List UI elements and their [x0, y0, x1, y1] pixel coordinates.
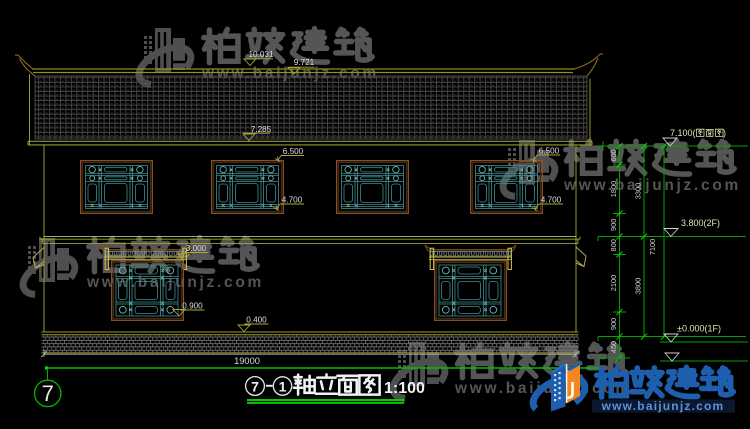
svg-text:3800: 3800 — [634, 278, 643, 294]
svg-text:3.000: 3.000 — [186, 244, 207, 253]
svg-text:7100: 7100 — [648, 239, 657, 255]
svg-text:6.500: 6.500 — [283, 147, 304, 156]
svg-text:7.285: 7.285 — [251, 125, 272, 134]
svg-text:3300: 3300 — [634, 183, 643, 199]
svg-text:7: 7 — [42, 381, 54, 406]
svg-text:±0.000(1F): ±0.000(1F) — [677, 324, 721, 334]
svg-text:2100: 2100 — [609, 275, 618, 291]
svg-text:7: 7 — [251, 378, 259, 394]
svg-text:10.031: 10.031 — [248, 50, 273, 59]
svg-text:www.baijunjz.com: www.baijunjz.com — [563, 177, 741, 194]
svg-text:7.100(: 7.100( — [670, 128, 696, 138]
svg-text:4.700: 4.700 — [282, 196, 303, 205]
svg-text:www.baijunjz.com: www.baijunjz.com — [601, 399, 725, 413]
svg-text:1:100: 1:100 — [384, 380, 425, 397]
svg-text:19000: 19000 — [234, 356, 260, 366]
svg-text:450: 450 — [609, 341, 618, 353]
svg-text:0.400: 0.400 — [246, 316, 267, 325]
svg-text:1: 1 — [279, 378, 287, 394]
svg-text:900: 900 — [609, 219, 618, 231]
svg-text:): ) — [723, 128, 726, 138]
svg-text:4.700: 4.700 — [541, 196, 562, 205]
svg-text:800: 800 — [609, 239, 618, 251]
svg-text:900: 900 — [609, 318, 618, 330]
svg-text:600: 600 — [609, 149, 618, 161]
svg-text:3.800(2F): 3.800(2F) — [681, 218, 720, 228]
svg-text:9.721: 9.721 — [294, 58, 315, 67]
svg-text:1800: 1800 — [609, 181, 618, 197]
svg-text:6.500: 6.500 — [539, 147, 560, 156]
